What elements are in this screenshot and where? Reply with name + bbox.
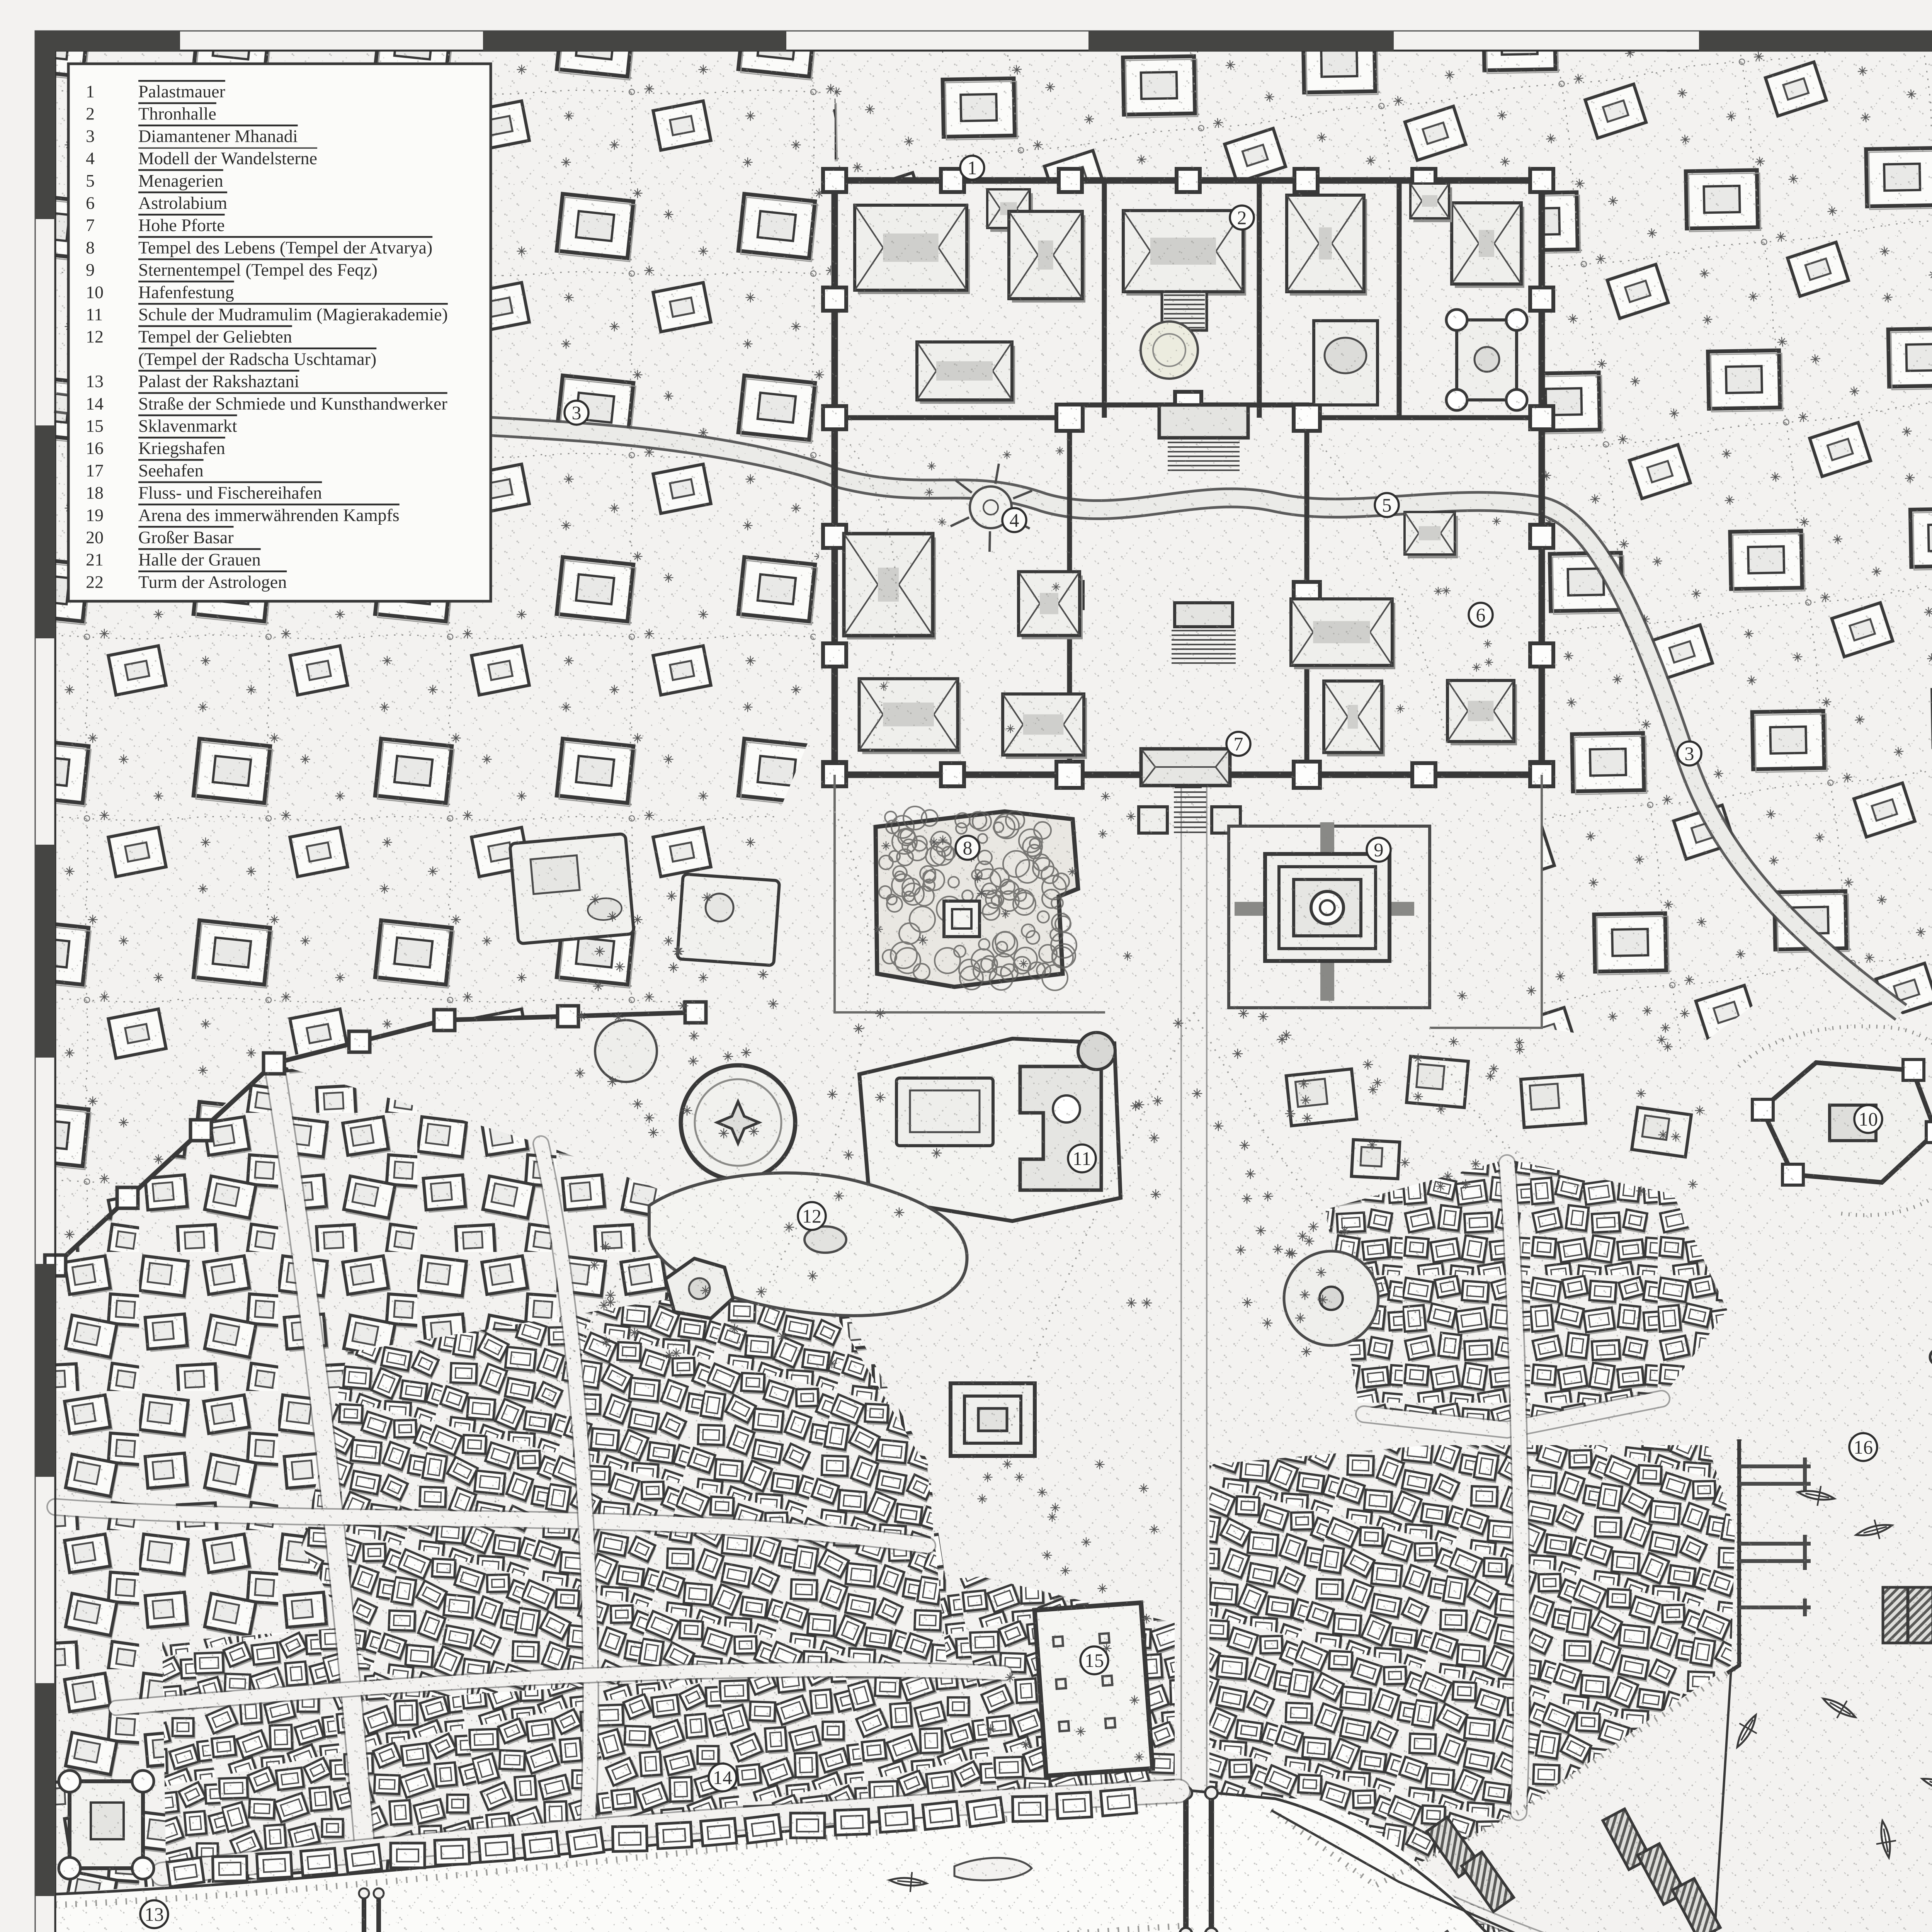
svg-text:18: 18 <box>86 483 104 503</box>
svg-text:Tempel der Geliebten: Tempel der Geliebten <box>138 327 292 347</box>
svg-text:Tempel des Lebens (Tempel der: Tempel des Lebens (Tempel der Atvarya) <box>138 238 432 257</box>
svg-text:Fluss- und Fischereihafen: Fluss- und Fischereihafen <box>138 483 322 503</box>
svg-text:2: 2 <box>1237 207 1247 228</box>
svg-text:Sternentempel (Tempel des Feqz: Sternentempel (Tempel des Feqz) <box>138 260 378 280</box>
svg-text:15: 15 <box>86 416 104 436</box>
svg-text:11: 11 <box>86 304 103 324</box>
svg-text:Halle der Grauen: Halle der Grauen <box>138 550 261 570</box>
svg-text:Seehafen: Seehafen <box>138 461 204 480</box>
svg-text:Palast der Rakshaztani: Palast der Rakshaztani <box>138 371 299 391</box>
svg-text:9: 9 <box>1374 839 1384 861</box>
svg-text:Thronhalle: Thronhalle <box>138 104 216 124</box>
svg-text:Kriegshafen: Kriegshafen <box>138 438 225 458</box>
svg-text:17: 17 <box>86 461 104 480</box>
svg-text:13: 13 <box>86 371 104 391</box>
svg-text:3: 3 <box>86 126 95 146</box>
svg-text:8: 8 <box>963 837 973 859</box>
svg-text:Hafenfestung: Hafenfestung <box>138 282 234 302</box>
svg-text:4: 4 <box>1010 509 1019 531</box>
svg-text:Diamantener Mhanadi: Diamantener Mhanadi <box>138 126 298 146</box>
svg-text:12: 12 <box>86 327 104 347</box>
svg-text:Schule der Mudramulim (Magiera: Schule der Mudramulim (Magierakademie) <box>138 304 448 324</box>
svg-text:Hohe Pforte: Hohe Pforte <box>138 215 225 235</box>
svg-text:Turm der Astrologen: Turm der Astrologen <box>138 572 287 592</box>
svg-text:6: 6 <box>1476 604 1486 626</box>
svg-text:13: 13 <box>145 1903 164 1925</box>
svg-text:3: 3 <box>1685 743 1694 764</box>
svg-text:6: 6 <box>86 193 95 213</box>
svg-text:14: 14 <box>86 394 104 413</box>
svg-text:12: 12 <box>802 1205 821 1227</box>
svg-text:Straße der Schmiede und Kunsth: Straße der Schmiede und Kunsthandwerker <box>138 394 447 413</box>
svg-text:16: 16 <box>1854 1436 1873 1458</box>
svg-text:10: 10 <box>86 282 104 302</box>
svg-text:Arena des immerwährenden Kampf: Arena des immerwährenden Kampfs <box>138 505 400 525</box>
svg-text:11: 11 <box>1073 1148 1091 1169</box>
svg-text:Modell der Wandelsterne: Modell der Wandelsterne <box>138 148 317 168</box>
svg-text:7: 7 <box>1234 733 1243 755</box>
svg-text:3: 3 <box>572 402 582 423</box>
svg-text:Sklavenmarkt: Sklavenmarkt <box>138 416 237 436</box>
svg-text:5: 5 <box>86 171 95 190</box>
svg-text:Palastmauer: Palastmauer <box>138 82 225 101</box>
svg-text:20: 20 <box>86 527 104 547</box>
svg-text:10: 10 <box>1859 1108 1878 1130</box>
svg-text:Menagerien: Menagerien <box>138 171 223 190</box>
svg-text:9: 9 <box>86 260 95 280</box>
svg-text:1: 1 <box>968 157 977 179</box>
svg-text:8: 8 <box>86 238 95 257</box>
svg-text:7: 7 <box>86 215 95 235</box>
svg-text:2: 2 <box>86 104 95 124</box>
svg-text:(Tempel der Radscha Uschtamar): (Tempel der Radscha Uschtamar) <box>138 349 376 369</box>
svg-text:Großer Basar: Großer Basar <box>138 527 234 547</box>
svg-text:15: 15 <box>1085 1650 1104 1671</box>
svg-text:21: 21 <box>86 550 104 570</box>
svg-text:19: 19 <box>86 505 104 525</box>
svg-text:1: 1 <box>86 82 95 101</box>
svg-text:5: 5 <box>1382 494 1392 516</box>
svg-text:Astrolabium: Astrolabium <box>138 193 227 213</box>
svg-text:14: 14 <box>713 1767 732 1788</box>
svg-text:16: 16 <box>86 438 104 458</box>
svg-text:4: 4 <box>86 148 95 168</box>
svg-text:22: 22 <box>86 572 104 592</box>
